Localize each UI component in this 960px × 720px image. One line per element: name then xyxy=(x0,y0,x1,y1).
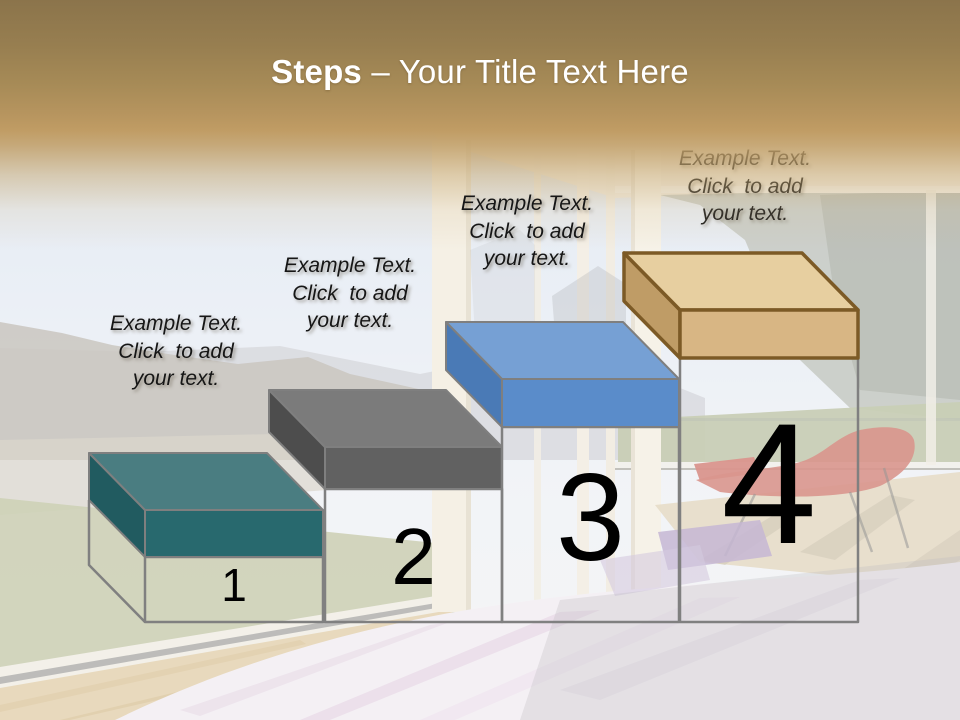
step-1-front-face xyxy=(145,510,323,557)
step-3-front-face xyxy=(502,379,679,427)
steps-diagram xyxy=(0,0,960,720)
step-4-number[interactable]: 4 xyxy=(680,398,858,570)
step-1-number[interactable]: 1 xyxy=(145,562,323,608)
step-2-number[interactable]: 2 xyxy=(325,517,502,597)
step-3-number[interactable]: 3 xyxy=(502,456,679,580)
step-2-front-face xyxy=(325,447,502,489)
step-4-front-face xyxy=(680,310,858,358)
slide: Example Text. Click to add your text. St… xyxy=(0,0,960,720)
